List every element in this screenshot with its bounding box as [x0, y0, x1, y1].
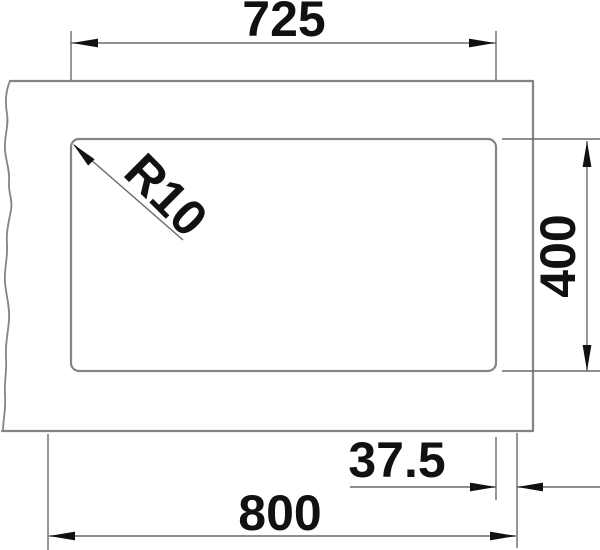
dim-37-5-label: 37.5: [348, 432, 445, 488]
sink-technical-drawing: 725 R10 400 37.5 800: [0, 0, 600, 550]
dim-725-arrow-right: [469, 39, 495, 48]
dim-725-label: 725: [242, 0, 325, 47]
countertop-outline: [2, 81, 533, 431]
r10-leader-arrow: [73, 144, 95, 166]
dim-37-5-arrow-left: [470, 483, 496, 492]
dim-800-arrow-left: [49, 532, 75, 541]
dim-800-arrow-right: [490, 532, 516, 541]
dim-400-arrow-bottom: [583, 345, 592, 371]
dim-725-arrow-left: [72, 39, 98, 48]
drawing-canvas: 725 R10 400 37.5 800: [0, 0, 600, 550]
dim-37-5-arrow-right: [517, 483, 543, 492]
break-line-left: [3, 81, 11, 431]
dim-800-label: 800: [238, 485, 321, 541]
dim-400-arrow-top: [583, 141, 592, 167]
dim-400-label: 400: [530, 214, 586, 297]
r10-label: R10: [114, 143, 218, 247]
